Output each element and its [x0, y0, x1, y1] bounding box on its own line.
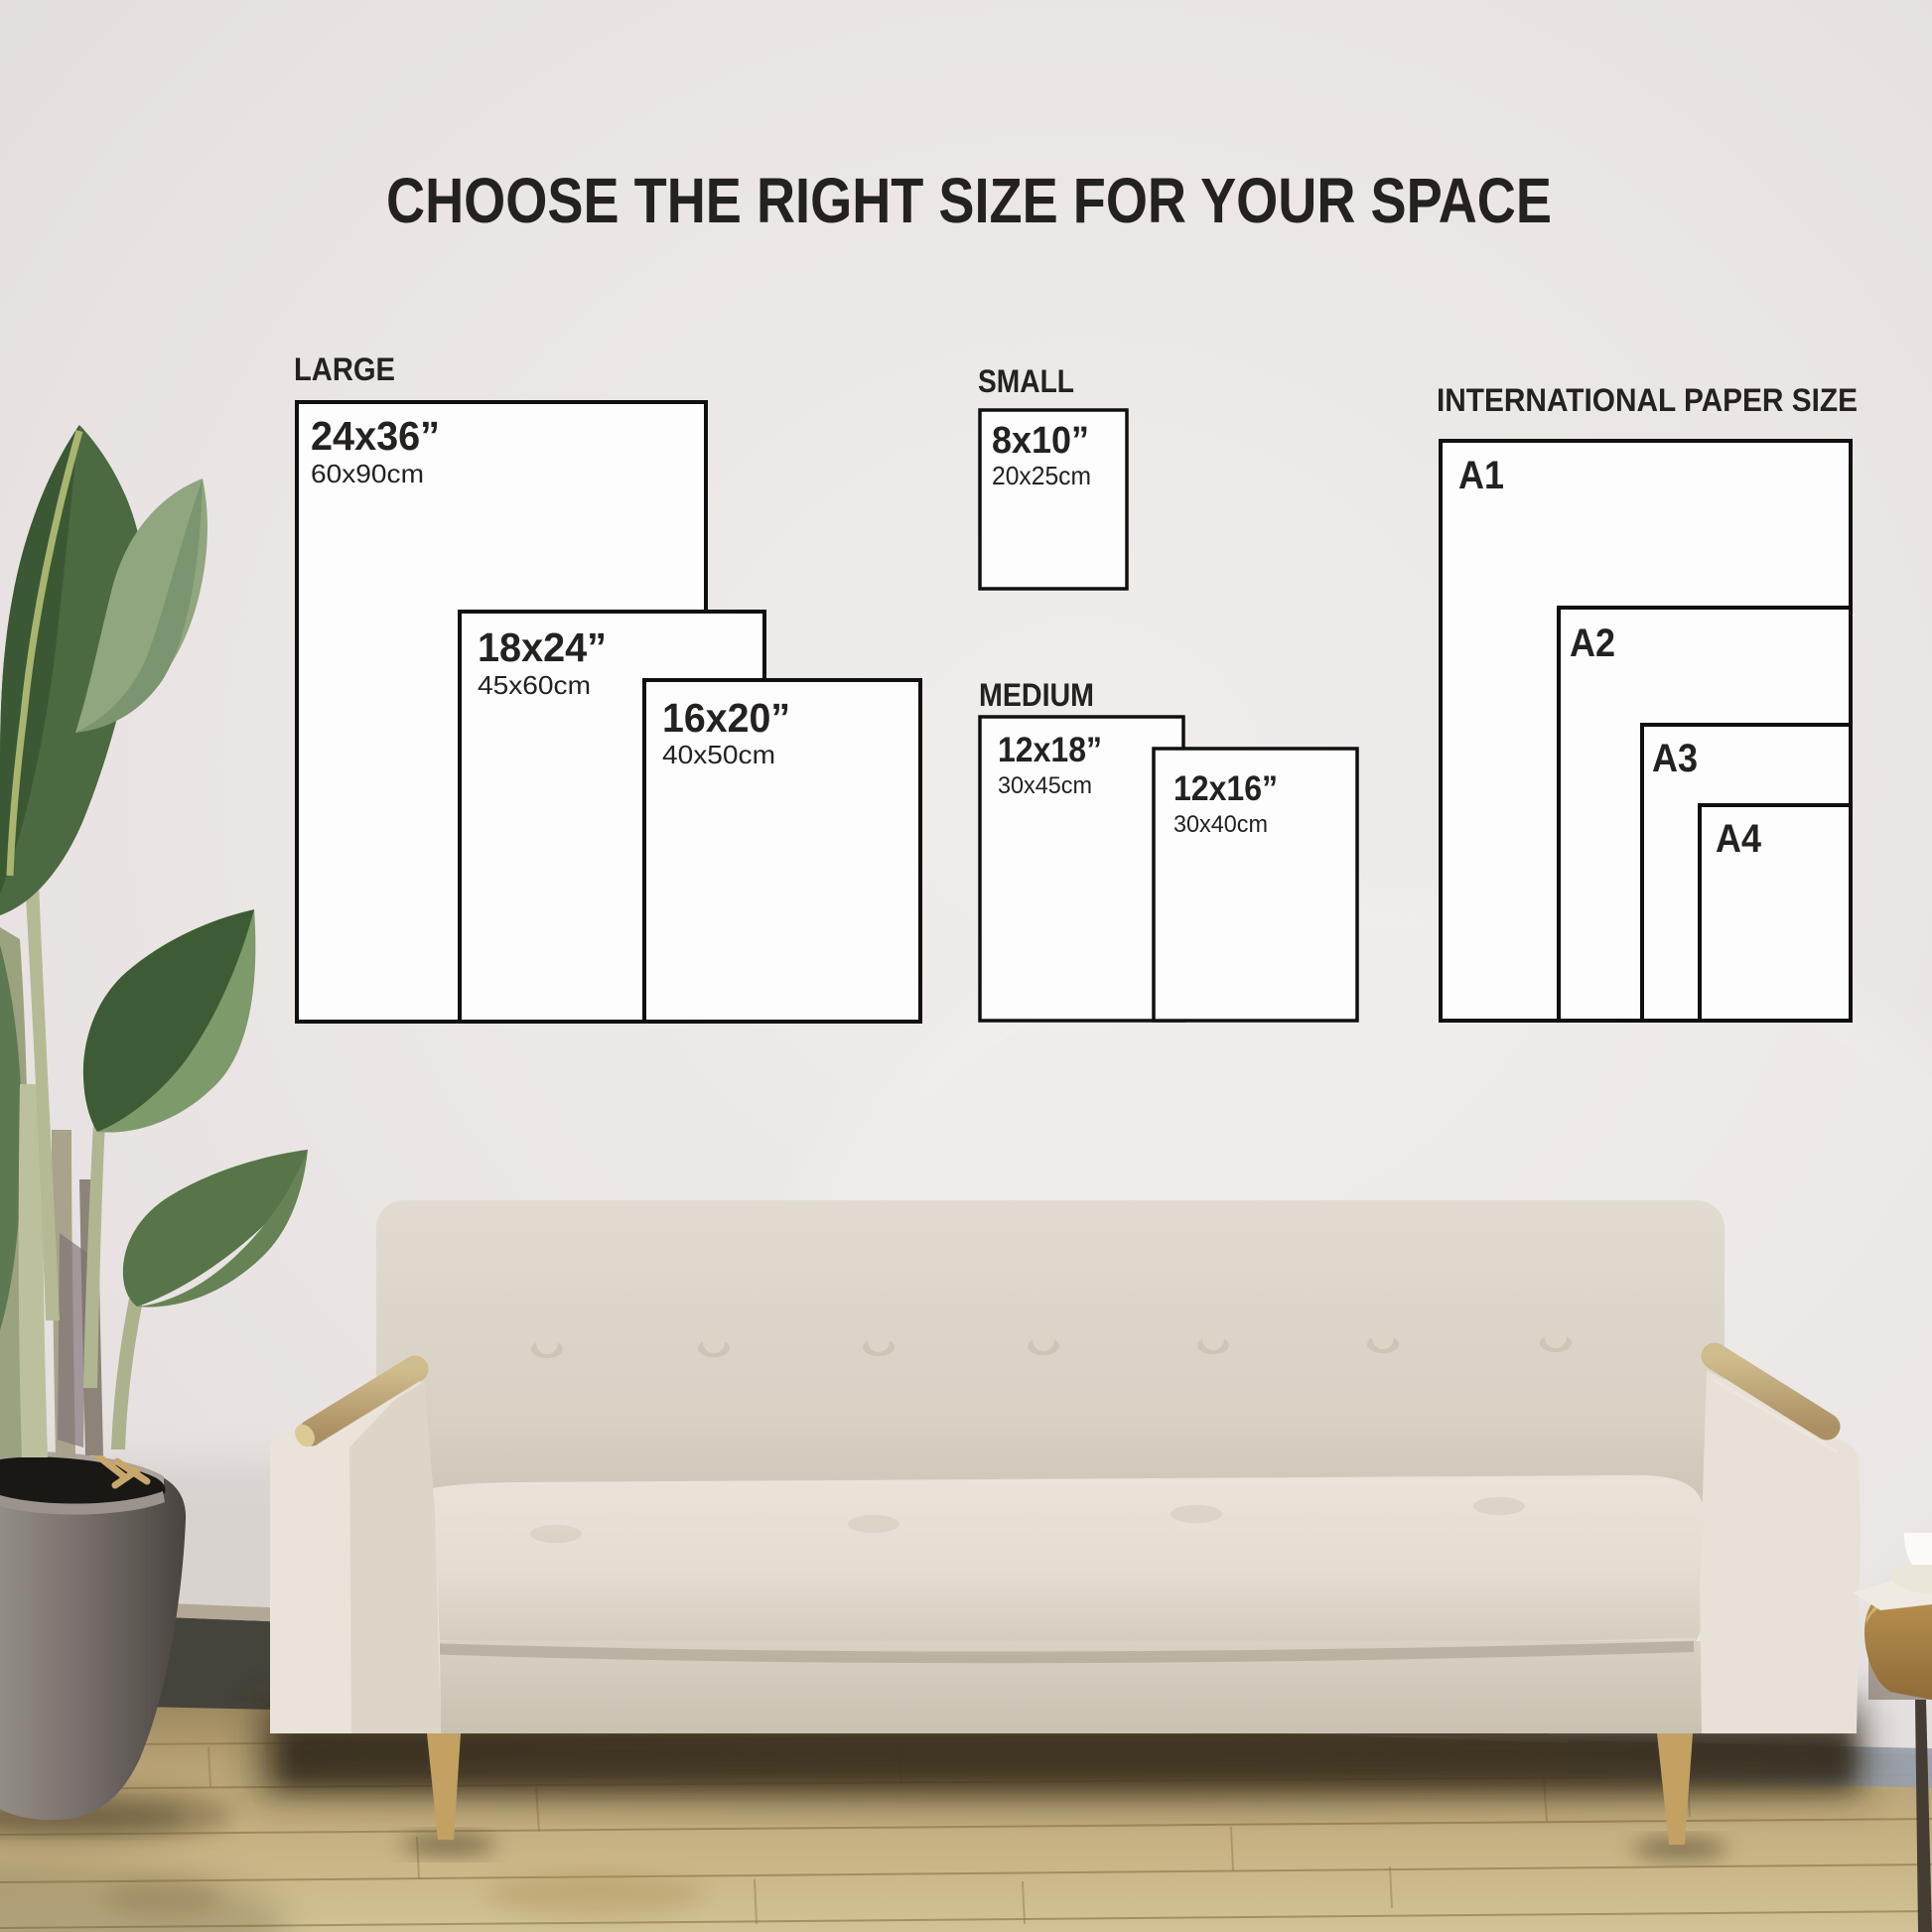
svg-text:CHOOSE THE RIGHT SIZE FOR YOUR: CHOOSE THE RIGHT SIZE FOR YOUR SPACE	[386, 165, 1552, 236]
svg-text:A1: A1	[1458, 454, 1504, 497]
svg-text:A3: A3	[1652, 737, 1698, 780]
svg-text:8x10”: 8x10”	[992, 420, 1089, 462]
svg-text:12x16”: 12x16”	[1173, 769, 1278, 808]
svg-text:60x90cm: 60x90cm	[311, 459, 424, 488]
svg-text:45x60cm: 45x60cm	[478, 670, 591, 700]
svg-text:16x20”: 16x20”	[662, 695, 790, 741]
svg-text:SMALL: SMALL	[978, 363, 1074, 399]
svg-text:MEDIUM: MEDIUM	[979, 677, 1094, 713]
svg-text:18x24”: 18x24”	[478, 624, 607, 670]
svg-text:A4: A4	[1716, 817, 1762, 861]
svg-text:LARGE: LARGE	[294, 351, 395, 387]
svg-text:20x25cm: 20x25cm	[992, 461, 1091, 490]
svg-text:30x45cm: 30x45cm	[998, 772, 1092, 799]
svg-text:30x40cm: 30x40cm	[1173, 811, 1268, 838]
svg-text:INTERNATIONAL PAPER SIZE: INTERNATIONAL PAPER SIZE	[1437, 382, 1858, 418]
svg-text:12x18”: 12x18”	[998, 731, 1102, 769]
svg-text:40x50cm: 40x50cm	[662, 740, 775, 769]
svg-text:A2: A2	[1570, 621, 1615, 665]
svg-text:24x36”: 24x36”	[311, 413, 440, 459]
